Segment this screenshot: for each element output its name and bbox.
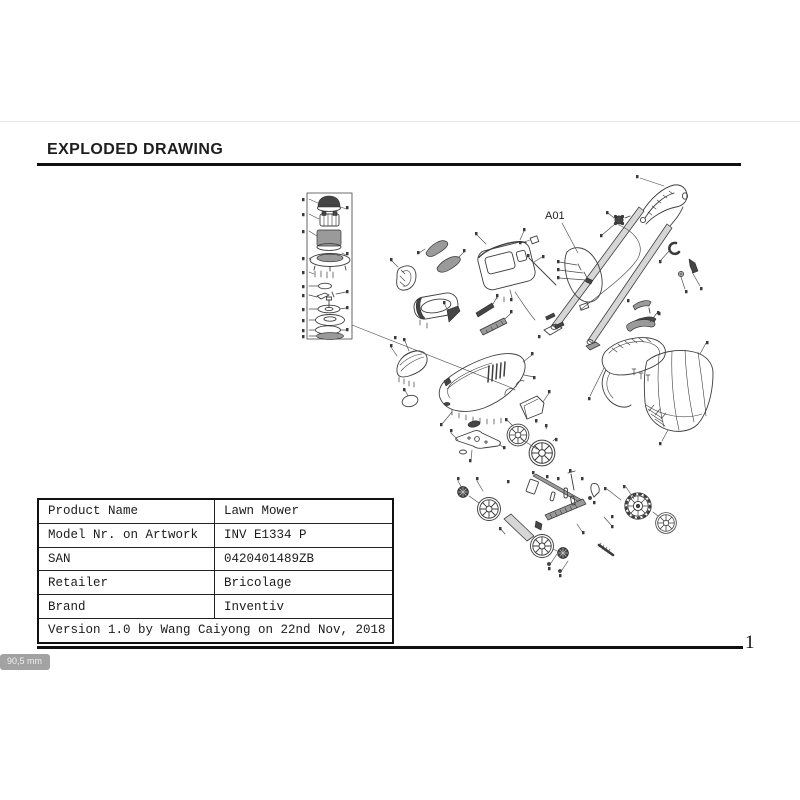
motor-subassembly-group xyxy=(307,193,512,388)
row-label: Model Nr. on Artwork xyxy=(38,523,215,547)
row-label: Retailer xyxy=(38,571,215,595)
table-row-brand: Brand Inventiv xyxy=(38,595,393,619)
table-row-model-nr: Model Nr. on Artwork INV E1334 P xyxy=(38,523,393,547)
row-value: Inventiv xyxy=(215,595,394,619)
row-label: Brand xyxy=(38,595,215,619)
page-number: 1 xyxy=(745,632,755,654)
version-note: Version 1.0 by Wang Caiyong on 22nd Nov,… xyxy=(38,618,393,642)
axle-train-group xyxy=(458,471,613,573)
product-info-table: Product Name Lawn Mower Model Nr. on Art… xyxy=(37,498,394,644)
motor-cover-group xyxy=(476,231,542,320)
blade-group xyxy=(451,431,504,460)
measurement-badge: 90,5 mm xyxy=(0,654,50,670)
row-value: Lawn Mower xyxy=(215,499,394,523)
row-label: SAN xyxy=(38,547,215,571)
document-page: EXPLODED DRAWING xyxy=(0,0,800,800)
rear-wheels-group xyxy=(607,487,676,533)
row-label: Product Name xyxy=(38,499,215,523)
upper-brackets-group xyxy=(392,241,511,335)
table-row-retailer: Retailer Bricolage xyxy=(38,571,393,595)
row-value: 0420401489ZB xyxy=(215,547,394,571)
table-row-san: SAN 0420401489ZB xyxy=(38,547,393,571)
table-row-product-name: Product Name Lawn Mower xyxy=(38,499,393,523)
table-row-version: Version 1.0 by Wang Caiyong on 22nd Nov,… xyxy=(38,618,393,642)
grass-bag-group xyxy=(590,313,713,441)
row-value: INV E1334 P xyxy=(215,523,394,547)
handle-assembly-group xyxy=(521,178,700,350)
footer-rule xyxy=(37,646,743,649)
row-value: Bricolage xyxy=(215,571,394,595)
callout-a01-label: A01 xyxy=(545,210,565,222)
deck-assembly-group xyxy=(391,341,549,428)
front-wheels-group xyxy=(507,420,556,466)
exploded-drawing: A01 xyxy=(0,0,800,800)
